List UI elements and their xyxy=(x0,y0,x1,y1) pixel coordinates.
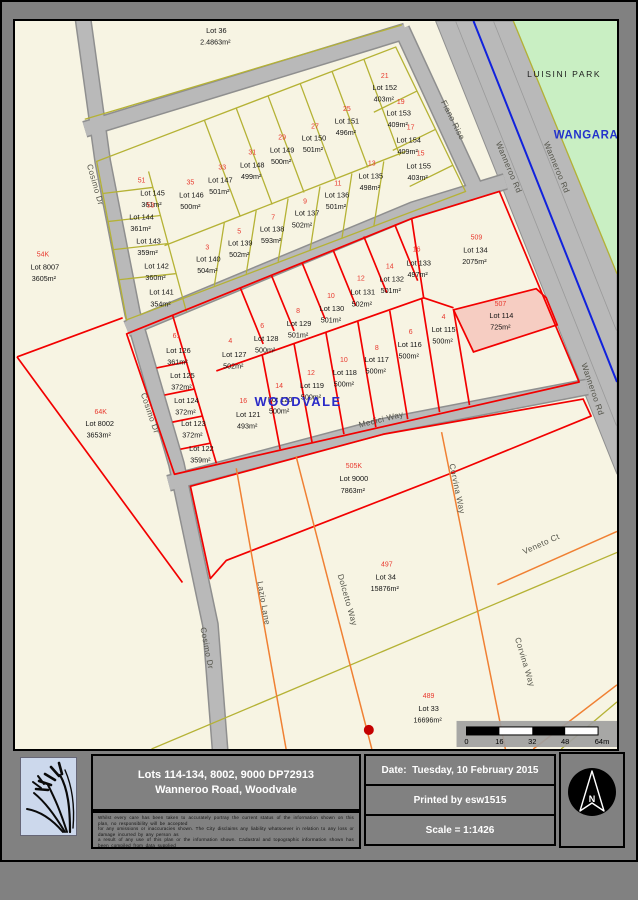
scalebar-label: 64m xyxy=(595,737,610,746)
street-number-label: 497 xyxy=(381,561,393,568)
lot-area-label: 502m² xyxy=(229,250,250,259)
lot-area-label: 496m² xyxy=(336,128,357,137)
street-number-label: 4 xyxy=(442,314,446,321)
street-number-label: 25 xyxy=(343,106,351,113)
street-number-label: 17 xyxy=(407,124,415,131)
map-title-line2: Wanneroo Road, Woodvale xyxy=(155,783,297,798)
lot-label: Lot 122 xyxy=(189,444,214,453)
lot-label: Lot 132 xyxy=(379,275,404,284)
street-number-label: 12 xyxy=(357,276,365,283)
printed-by: Printed by esw1515 xyxy=(364,784,556,816)
lot-area-label: 502m² xyxy=(292,221,313,230)
street-number-label: 14 xyxy=(275,383,283,390)
lot-area-label: 498m² xyxy=(360,183,381,192)
street-number-label: 33 xyxy=(218,164,226,171)
scale-bar xyxy=(457,721,617,747)
lot-label: Lot 145 xyxy=(140,188,165,197)
lot-label: Lot 8007 xyxy=(31,263,60,272)
lot-label: Lot 114 xyxy=(489,311,513,320)
lot-label: Lot 117 xyxy=(365,355,389,364)
lot-label: Lot 128 xyxy=(254,334,279,343)
lot-label: Lot 34 xyxy=(376,573,396,582)
lot-area-label: 361m² xyxy=(167,357,188,366)
street-number-label: 507 xyxy=(495,301,507,308)
lot-area-label: 360m² xyxy=(145,273,166,282)
street-number-label: 5 xyxy=(237,229,241,236)
street-number-label: 4 xyxy=(228,338,232,345)
street-number-label: 14 xyxy=(386,264,394,271)
street-number-label: 11 xyxy=(334,180,341,187)
disclaimer-line: for any omissions or inaccuracies shown.… xyxy=(98,826,354,837)
locality-label: WANGARA xyxy=(554,129,617,141)
lot-label: Lot 150 xyxy=(302,133,327,142)
lot-area-label: 16696m² xyxy=(413,715,442,724)
street-number-label: 21 xyxy=(381,73,389,80)
lot-area-label: 500m² xyxy=(271,157,292,166)
street-number-label: 7 xyxy=(271,215,275,222)
lot-label: Lot 149 xyxy=(270,145,295,154)
locality-label: WOODVALE xyxy=(254,394,341,409)
street-number-label: 3 xyxy=(205,245,209,252)
locality-label: LUISINI PARK xyxy=(527,69,601,79)
map-canvas: Lot 362.4863m²Lot 145361m²51Lot 144361m²… xyxy=(15,21,617,749)
lot-area-label: 2.4863m² xyxy=(200,38,231,47)
street-number-label: 13 xyxy=(368,160,376,167)
lot-label: Lot 135 xyxy=(359,171,384,180)
street-number-label: 53 xyxy=(147,202,155,209)
lot-label: Lot 121 xyxy=(236,410,261,419)
lot-area-label: 15876m² xyxy=(371,584,400,593)
lot-label: Lot 133 xyxy=(406,259,431,268)
lot-area-label: 501m² xyxy=(209,187,230,196)
lot-area-label: 725m² xyxy=(490,322,511,331)
lot-area-label: 501m² xyxy=(321,315,342,324)
print-meta-block: Date: Tuesday, 10 February 2015 Printed … xyxy=(364,754,556,846)
lot-label: Lot 36 xyxy=(206,26,226,35)
lot-area-label: 493m² xyxy=(237,422,258,431)
lot-area-label: 403m² xyxy=(374,95,395,104)
lot-area-label: 409m² xyxy=(398,147,419,156)
street-number-label: 29 xyxy=(278,134,286,141)
lot-label: Lot 126 xyxy=(166,346,191,355)
lot-area-label: 372m² xyxy=(182,431,203,440)
map-panel: Lot 362.4863m²Lot 145361m²51Lot 144361m²… xyxy=(13,19,619,751)
map-title-line1: Lots 114-134, 8002, 9000 DP72913 xyxy=(138,768,314,783)
lot-label: Lot 118 xyxy=(333,368,357,377)
north-label: N xyxy=(589,794,596,804)
street-number-label: 6 xyxy=(409,329,413,336)
lot-label: Lot 33 xyxy=(418,704,438,713)
lot-label: Lot 147 xyxy=(208,175,233,184)
street-number-label: 509 xyxy=(471,235,483,242)
street-number-label: 15 xyxy=(417,150,425,157)
street-number-label: 16 xyxy=(413,247,421,254)
kangaroo-paw-icon xyxy=(21,758,78,837)
lot-area-label: 409m² xyxy=(388,120,409,129)
lot-label: Lot 139 xyxy=(228,239,253,248)
lot-area-label: 372m² xyxy=(175,408,196,417)
lot-area-label: 500m² xyxy=(180,202,201,211)
disclaimer-line: a result of any use of this plan or the … xyxy=(98,837,354,848)
lot-area-label: 504m² xyxy=(197,266,218,275)
lot-label: Lot 138 xyxy=(260,225,285,234)
street-number-label: 10 xyxy=(327,293,335,300)
lot-area-label: 499m² xyxy=(241,172,262,181)
lot-label: Lot 148 xyxy=(240,160,265,169)
disclaimer-block: Whilst every care has been taken to accu… xyxy=(91,811,361,849)
street-number-label: 64K xyxy=(95,409,108,416)
street-number-label: 12 xyxy=(307,370,315,377)
street-number-label: 505K xyxy=(346,463,363,470)
lot-area-label: 3653m² xyxy=(87,431,112,440)
print-scale: Scale = 1:1426 xyxy=(364,814,556,846)
lot-area-label: 500m² xyxy=(255,345,276,354)
scalebar-label: 48 xyxy=(561,737,569,746)
lot-label: Lot 136 xyxy=(325,190,350,199)
lot-label: Lot 154 xyxy=(396,135,421,144)
lot-area-label: 361m² xyxy=(130,224,151,233)
lot-label: Lot 153 xyxy=(386,108,411,117)
lot-label: Lot 119 xyxy=(300,381,324,390)
lot-label: Lot 116 xyxy=(398,340,422,349)
street-number-label: 31 xyxy=(248,149,256,156)
lot-area-label: 502m² xyxy=(223,361,244,370)
lot-label: Lot 8002 xyxy=(85,419,114,428)
map-sheet: Lot 362.4863m²Lot 145361m²51Lot 144361m²… xyxy=(0,0,638,900)
street-number-label: 35 xyxy=(187,179,195,186)
lot-label: Lot 137 xyxy=(295,209,320,218)
lot-label: Lot 140 xyxy=(196,255,221,264)
map-title-block: Lots 114-134, 8002, 9000 DP72913 Wannero… xyxy=(91,754,361,811)
lot-label: Lot 127 xyxy=(222,350,247,359)
lot-label: Lot 115 xyxy=(432,325,456,334)
lot-area-label: 403m² xyxy=(408,173,429,182)
lot-area-label: 501m² xyxy=(381,286,402,295)
lot-label: Lot 144 xyxy=(129,213,154,222)
street-number-label: 51 xyxy=(138,177,146,184)
lot-label: Lot 151 xyxy=(335,116,360,125)
scalebar-label: 16 xyxy=(495,737,503,746)
council-logo xyxy=(20,757,77,836)
print-date: Date: Tuesday, 10 February 2015 xyxy=(364,754,556,786)
lot-label: Lot 141 xyxy=(149,288,174,297)
lot-label: Lot 9000 xyxy=(340,474,369,483)
street-number-label: 16 xyxy=(239,398,247,405)
north-arrow-icon: N xyxy=(561,754,623,846)
lot-label: Lot 146 xyxy=(179,190,204,199)
lot-label: Lot 123 xyxy=(181,419,206,428)
lot-area-label: 497m² xyxy=(408,270,429,279)
lot-area-label: 359m² xyxy=(190,456,211,465)
lot-area-label: 7863m² xyxy=(341,486,366,495)
lot-label: Lot 142 xyxy=(144,262,169,271)
lot-label: Lot 152 xyxy=(373,83,398,92)
disclaimer-line: Whilst every care has been taken to accu… xyxy=(98,815,354,826)
north-arrow: N xyxy=(559,752,625,848)
lot-area-label: 501m² xyxy=(326,202,347,211)
street-number-label: 8 xyxy=(375,345,379,352)
lot-area-label: 593m² xyxy=(261,236,282,245)
lot-label: Lot 155 xyxy=(406,161,431,170)
lot-area-label: 500m² xyxy=(399,351,420,360)
lot-area-label: 500m² xyxy=(432,336,453,345)
lot-area-label: 3605m² xyxy=(32,274,57,283)
lot-area-label: 502m² xyxy=(352,299,373,308)
lot-area-label: 501m² xyxy=(303,145,324,154)
lot-area-label: 2075m² xyxy=(462,257,487,266)
street-number-label: 9 xyxy=(303,198,307,205)
scalebar-label: 0 xyxy=(464,737,468,746)
street-number-label: 8 xyxy=(296,308,300,315)
lot-area-label: 359m² xyxy=(137,248,158,257)
lot-area-label: 500m² xyxy=(366,366,387,375)
lot-label: Lot 130 xyxy=(320,304,345,313)
street-number-label: 54K xyxy=(37,252,50,259)
scalebar-label: 32 xyxy=(528,737,536,746)
lot-label: Lot 129 xyxy=(287,319,312,328)
lot-area-label: 501m² xyxy=(288,330,309,339)
lot-label: Lot 131 xyxy=(351,288,376,297)
lot-label: Lot 125 xyxy=(170,371,195,380)
lot-label: Lot 124 xyxy=(174,396,199,405)
lot-label: Lot 143 xyxy=(136,237,161,246)
street-number-label: 19 xyxy=(397,99,405,106)
lot-area-label: 354m² xyxy=(150,299,171,308)
street-number-label: 489 xyxy=(423,693,435,700)
marker-dot xyxy=(364,725,374,735)
street-number-label: 61 xyxy=(173,333,181,340)
street-number-label: 10 xyxy=(340,357,348,364)
lot-area-label: 372m² xyxy=(171,382,192,391)
lot-area-label: 500m² xyxy=(334,379,355,388)
street-number-label: 27 xyxy=(311,123,319,130)
street-number-label: 6 xyxy=(260,323,264,330)
lot-label: Lot 134 xyxy=(463,246,488,255)
